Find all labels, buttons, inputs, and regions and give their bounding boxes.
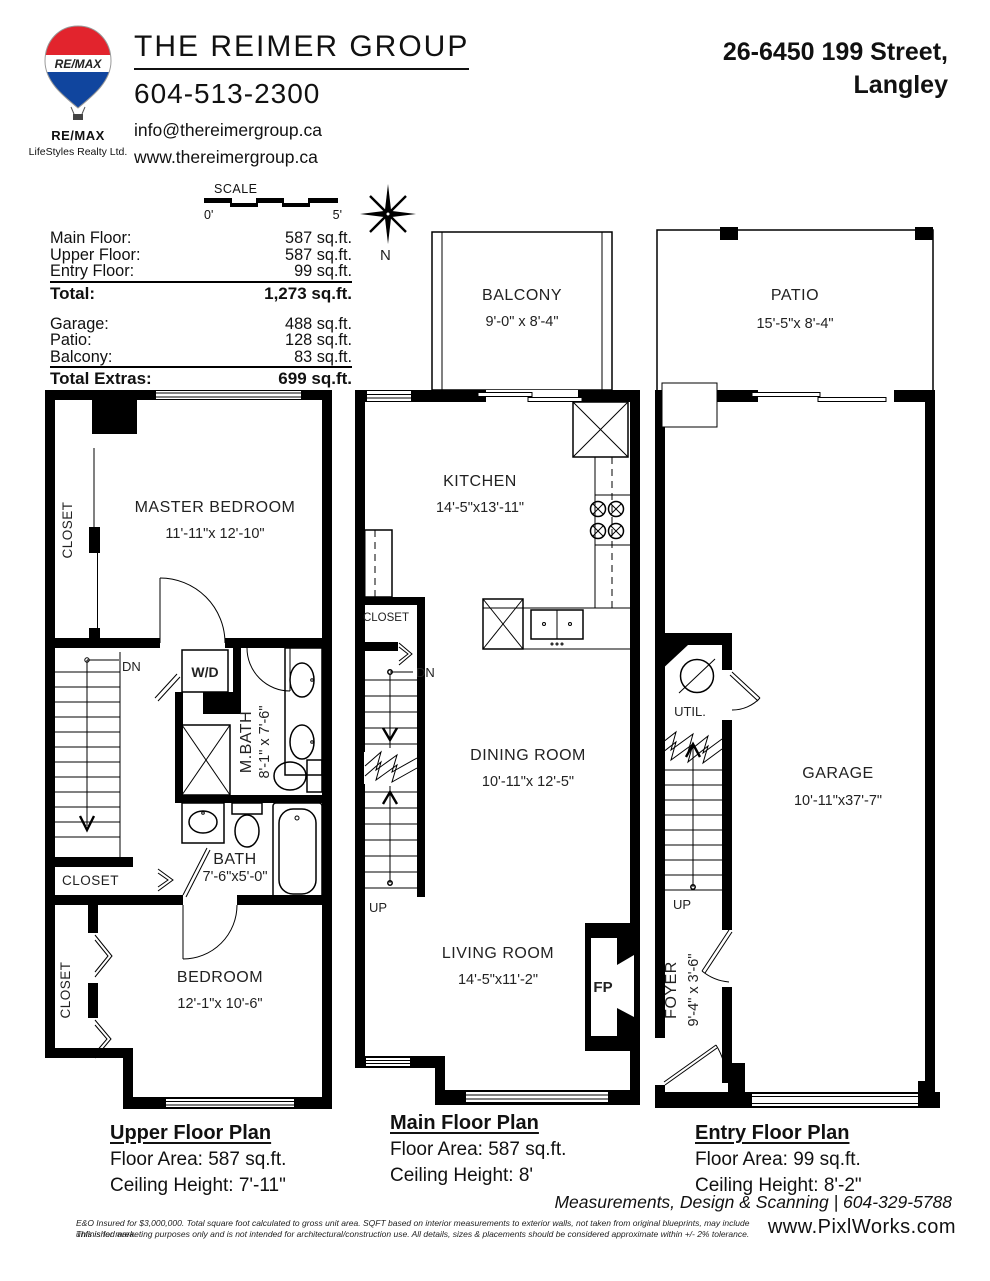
- room-label-kitchen: KITCHEN: [443, 473, 517, 490]
- closet-door: [399, 643, 412, 665]
- balcony-outline: [432, 232, 612, 390]
- floorplan-sheet: RE/MAX RE/MAX LifeStyles Realty Ltd. THE…: [0, 0, 990, 1281]
- summary-total-row: Total:1,273 sq.ft.: [50, 284, 352, 303]
- room-label-mbath: M.BATH: [238, 711, 255, 773]
- address-line-1: 26-6450 199 Street,: [723, 36, 948, 69]
- refrigerator: [573, 402, 628, 457]
- room-label-bath: BATH: [213, 851, 256, 868]
- stair-bulkhead: [662, 383, 717, 427]
- room-label-living: LIVING ROOM: [442, 945, 554, 962]
- fireplace-label: FP: [593, 979, 612, 996]
- room-label-bedroom: BEDROOM: [177, 969, 263, 986]
- scale-track: [204, 198, 338, 207]
- toilet: [232, 803, 262, 847]
- summary-row: Entry Floor:99 sq.ft.: [50, 263, 352, 280]
- logo-brand-name: RE/MAX: [36, 128, 120, 143]
- stairs-up-label: UP: [369, 900, 387, 915]
- services-credit: Measurements, Design & Scanning | 604-32…: [554, 1192, 952, 1213]
- stairs-down-label: DN: [122, 659, 141, 674]
- room-label-closet-mid: CLOSET: [62, 873, 119, 888]
- room-dims-patio: 15'-5"x 8'-4": [756, 316, 833, 332]
- room-dims-kitchen: 14'-5"x13'-11": [436, 500, 524, 516]
- patio-outline: [657, 227, 933, 390]
- upper-plan-label: Upper Floor Plan Floor Area: 587 sq.ft. …: [110, 1122, 286, 1197]
- summary-total-extras-row: Total Extras:699 sq.ft.: [50, 369, 352, 388]
- double-vanity-sinks: [285, 648, 322, 775]
- entry-door-swing: [655, 1038, 726, 1085]
- kitchen-sink: [531, 610, 583, 645]
- scale-bar: SCALE 0' 5': [204, 182, 342, 222]
- summary-row: Main Floor:587 sq.ft.: [50, 230, 352, 247]
- room-label-foyer: FOYER: [663, 961, 680, 1019]
- upper-plan-ceiling: Ceiling Height: 7'-11": [110, 1174, 286, 1197]
- summary-row: Garage:488 sq.ft.: [50, 316, 352, 333]
- entry-floor-plan-drawing: PATIO 15'-5"x 8'-4": [650, 225, 940, 1115]
- room-label-master: MASTER BEDROOM: [135, 499, 296, 516]
- kitchen-island: [483, 599, 523, 649]
- summary-row: Upper Floor:587 sq.ft.: [50, 247, 352, 264]
- room-label-balcony: BALCONY: [482, 287, 562, 304]
- scale-end: 5': [333, 208, 342, 222]
- brand-title: THE REIMER GROUP: [134, 30, 469, 70]
- room-dims-mbath: 8'-1" x 7'-6": [257, 705, 273, 778]
- area-summary: Main Floor:587 sq.ft. Upper Floor:587 sq…: [50, 230, 352, 388]
- window: [163, 1099, 297, 1107]
- main-plan-label: Main Floor Plan Floor Area: 587 sq.ft. C…: [390, 1112, 566, 1187]
- window: [153, 391, 304, 399]
- upper-plan-title: Upper Floor Plan: [110, 1122, 271, 1144]
- main-plan-area: Floor Area: 587 sq.ft.: [390, 1138, 566, 1161]
- room-dims-master: 11'-11"x 12'-10": [165, 526, 264, 542]
- room-dims-bedroom: 12'-1"x 10'-6": [177, 996, 262, 1012]
- room-label-closet-bottom: CLOSET: [58, 961, 73, 1018]
- sliding-glass-door: [478, 390, 582, 402]
- brand-website: www.thereimergroup.ca: [134, 147, 469, 168]
- pixlworks-credit: www.PixlWorks.com: [768, 1216, 956, 1239]
- summary-divider: [50, 281, 352, 283]
- bathtub: [273, 803, 322, 900]
- washer-dryer-label: W/D: [191, 664, 218, 680]
- room-dims-balcony: 9'-0" x 8'-4": [485, 314, 558, 330]
- main-plan-title: Main Floor Plan: [390, 1112, 539, 1134]
- remax-balloon-icon: RE/MAX: [38, 22, 118, 127]
- staircase: [364, 670, 417, 888]
- main-floor-plan-drawing: BALCONY 9'-0" x 8'-4": [350, 228, 645, 1113]
- room-label-garage: GARAGE: [802, 765, 873, 782]
- entry-plan-area: Floor Area: 99 sq.ft.: [695, 1148, 862, 1171]
- room-label-closet-top: CLOSET: [60, 501, 75, 558]
- room-dims-dining: 10'-11"x 12'-5": [482, 774, 574, 790]
- room-dims-garage: 10'-11"x37'-7": [794, 793, 882, 809]
- hot-water-tank: [679, 659, 715, 693]
- brand-phone: 604-513-2300: [134, 78, 469, 110]
- shower: [182, 725, 230, 795]
- sliding-glass-door: [752, 390, 894, 402]
- room-dims-living: 14'-5"x11'-2": [458, 972, 538, 988]
- main-plan-ceiling: Ceiling Height: 8': [390, 1164, 566, 1187]
- disclaimer-line-2: This is for marketing purposes only and …: [76, 1229, 786, 1240]
- stairs-up-label: UP: [673, 897, 691, 912]
- room-label-dining: DINING ROOM: [470, 747, 586, 764]
- entry-plan-title: Entry Floor Plan: [695, 1122, 849, 1144]
- summary-row: Balcony:83 sq.ft.: [50, 349, 352, 366]
- brand-block: THE REIMER GROUP 604-513-2300 info@there…: [134, 30, 469, 168]
- summary-divider: [50, 366, 352, 368]
- staircase: [55, 652, 120, 857]
- brand-email: info@thereimergroup.ca: [134, 120, 469, 141]
- window: [463, 1092, 611, 1102]
- door-swing: [183, 905, 237, 959]
- door-swing: [730, 672, 760, 710]
- room-label-patio: PATIO: [771, 287, 819, 304]
- window: [364, 391, 414, 401]
- scale-start: 0': [204, 208, 213, 222]
- logo-company-name: LifeStyles Realty Ltd.: [26, 146, 130, 158]
- room-label-closet: CLOSET: [363, 612, 409, 624]
- toilet: [274, 760, 322, 792]
- room-label-util: UTIL.: [674, 704, 706, 719]
- room-dims-foyer: 9'-4" x 3'-6": [686, 953, 702, 1026]
- scale-label: SCALE: [214, 182, 342, 196]
- address-line-2: Langley: [723, 69, 948, 102]
- door-swing: [247, 648, 290, 691]
- window: [366, 1058, 410, 1066]
- closet-door: [158, 869, 173, 891]
- upper-plan-area: Floor Area: 587 sq.ft.: [110, 1148, 286, 1171]
- stairs-down-label: DN: [416, 665, 435, 680]
- bathroom-sink: [182, 803, 224, 843]
- room-dims-bath: 7'-6"x5'-0": [203, 869, 268, 885]
- property-address: 26-6450 199 Street, Langley: [723, 36, 948, 102]
- garage-door: [748, 1094, 922, 1106]
- balloon-brand-text: RE/MAX: [55, 57, 103, 71]
- upper-floor-plan-drawing: DN W/D: [45, 390, 332, 1122]
- staircase: [658, 725, 722, 890]
- summary-row: Patio:128 sq.ft.: [50, 332, 352, 349]
- entry-plan-label: Entry Floor Plan Floor Area: 99 sq.ft. C…: [695, 1122, 862, 1197]
- door-swing: [160, 578, 225, 643]
- door-swing: [702, 930, 732, 982]
